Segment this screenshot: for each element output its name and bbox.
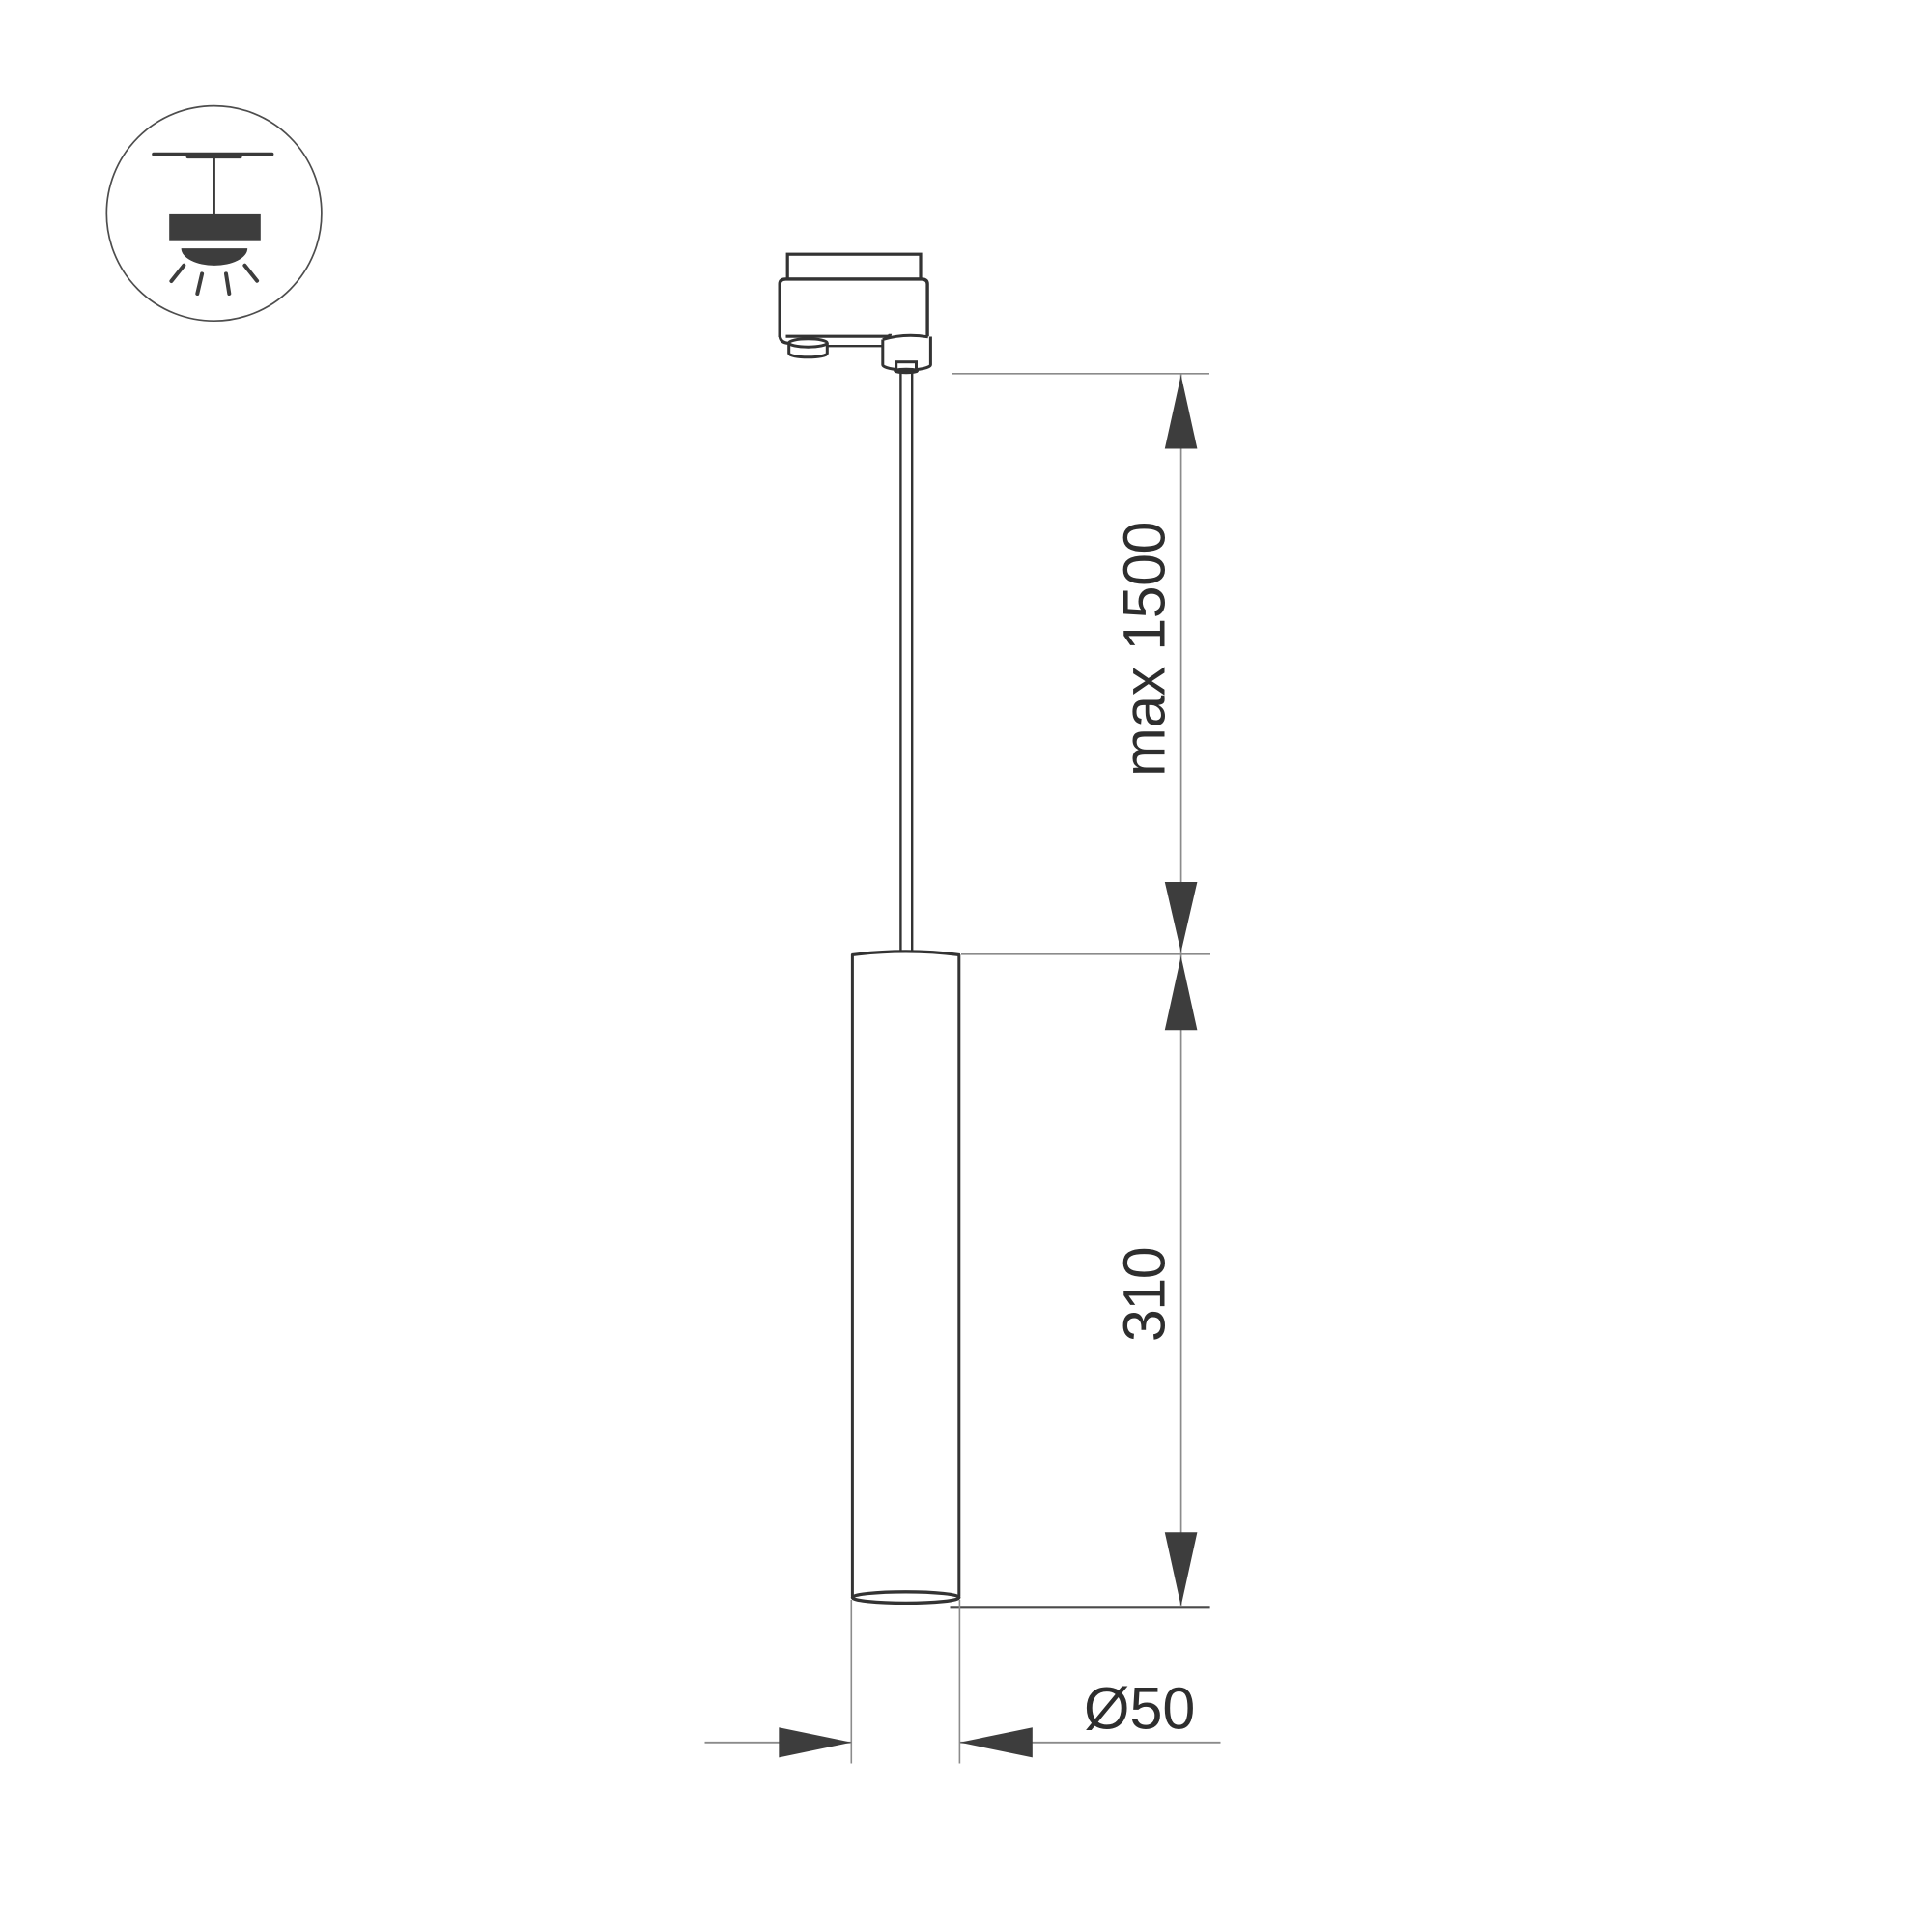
svg-text:310: 310: [1112, 1248, 1178, 1342]
svg-text:Ø50: Ø50: [1084, 1676, 1195, 1742]
svg-text:max 1500: max 1500: [1112, 522, 1178, 777]
